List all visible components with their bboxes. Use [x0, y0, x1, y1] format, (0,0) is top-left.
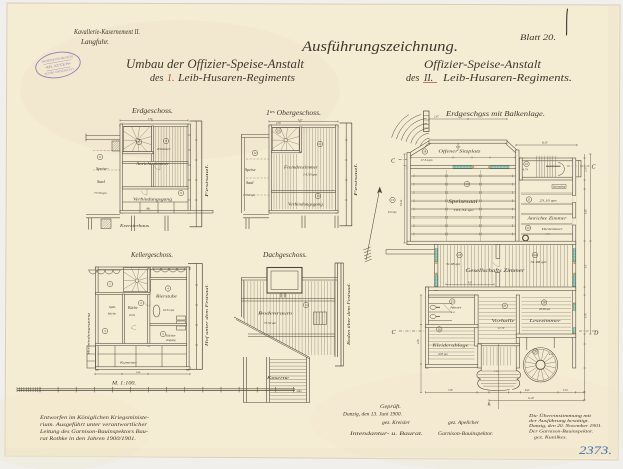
svg-text:Leitung des Garnison-Bauinspek: Leitung des Garnison-Bauinspektors Bau-: [39, 430, 149, 435]
svg-text:13: 13: [317, 194, 321, 198]
svg-text:4.51: 4.51: [468, 281, 472, 284]
svg-text:Speise: Speise: [245, 167, 256, 172]
svg-text:Hof unter dem Festsaal.: Hof unter dem Festsaal.: [205, 284, 209, 348]
svg-text:Speise-: Speise-: [96, 166, 109, 171]
svg-text:Offener Sitzplatz: Offener Sitzplatz: [439, 149, 481, 154]
svg-text:20m: 20m: [297, 389, 303, 393]
svg-text:4.74: 4.74: [523, 168, 529, 172]
svg-text:31.08 qm: 31.08 qm: [531, 260, 548, 264]
svg-text:Anrichte Zimmer: Anrichte Zimmer: [526, 215, 567, 220]
svg-text:Küche: Küche: [127, 306, 138, 310]
svg-text:14: 14: [305, 303, 309, 307]
svg-text:23: 23: [458, 253, 462, 257]
svg-text:11.28: 11.28: [528, 397, 534, 400]
svg-text:22: 22: [527, 226, 531, 230]
svg-text:17.70: 17.70: [498, 326, 505, 330]
svg-text:27: 27: [503, 304, 507, 308]
svg-text:8.41: 8.41: [525, 389, 530, 392]
svg-text:Langfuhr.: Langfuhr.: [80, 38, 109, 46]
svg-text:Garnison-Bauinspektor.: Garnison-Bauinspektor.: [438, 432, 493, 437]
svg-text:9.47: 9.47: [478, 116, 483, 119]
svg-text:19.34: 19.34: [400, 199, 403, 206]
svg-text:Küchen-: Küchen-: [165, 334, 176, 338]
svg-text:Abort: Abort: [448, 305, 461, 309]
svg-text:Zimmer: Zimmer: [157, 147, 172, 151]
svg-text:23.10 qm: 23.10 qm: [540, 198, 558, 202]
svg-text:1tes Obergeschoss.: 1tes Obergeschoss.: [266, 109, 321, 117]
svg-text:26: 26: [438, 327, 442, 331]
svg-text:10: 10: [277, 129, 281, 133]
svg-text:gez. Kunilkes.: gez. Kunilkes.: [534, 435, 567, 440]
svg-text:29: 29: [534, 350, 538, 354]
svg-text:4.05 qm: 4.05 qm: [438, 352, 449, 356]
svg-text:Blatt 20.: Blatt 20.: [520, 33, 556, 42]
svg-text:Ausführungszeichnung.: Ausführungszeichnung.: [301, 39, 458, 55]
svg-text:Exerzierhaus: Exerzierhaus: [119, 224, 150, 228]
svg-text:24: 24: [534, 253, 538, 257]
svg-text:M. 1:100.: M. 1:100.: [111, 381, 136, 387]
svg-text:B.: B.: [488, 402, 492, 407]
svg-text:eingang: eingang: [166, 338, 176, 342]
svg-text:3.10: 3.10: [563, 389, 568, 392]
svg-text:Boden über dem Festsaal.: Boden über dem Festsaal.: [347, 283, 351, 345]
svg-text:75.50 qm: 75.50 qm: [264, 321, 277, 325]
svg-text:31.08 qm: 31.08 qm: [446, 262, 461, 266]
svg-text:Fremdenzimmer: Fremdenzimmer: [283, 166, 319, 170]
svg-text:4.50: 4.50: [276, 122, 281, 125]
svg-text:15: 15: [391, 198, 395, 202]
svg-text:Gesellschafts Zimmer: Gesellschafts Zimmer: [466, 269, 525, 274]
svg-text:Kammer: Kammer: [119, 361, 138, 365]
svg-text:17.34 qm: 17.34 qm: [421, 158, 434, 162]
svg-text:Alk.: Alk.: [145, 208, 151, 211]
svg-text:Dachgeschoss.: Dachgeschoss.: [262, 252, 307, 259]
svg-text:1.71: 1.71: [546, 232, 550, 235]
svg-text:101.34 qm: 101.34 qm: [454, 208, 475, 212]
svg-text:21: 21: [528, 198, 532, 202]
svg-text:4.05: 4.05: [417, 339, 420, 344]
svg-text:12: 12: [254, 151, 258, 155]
svg-text:Verbindungsgang: Verbindungsgang: [87, 312, 91, 355]
svg-text:17.50 qm: 17.50 qm: [243, 193, 256, 197]
svg-text:Saal: Saal: [97, 179, 106, 184]
svg-text:Der Garnison-Bauinspektor.: Der Garnison-Bauinspektor.: [528, 429, 593, 434]
svg-text:28: 28: [543, 301, 547, 305]
svg-text:14.50 qm: 14.50 qm: [303, 174, 317, 177]
svg-text:Offizier-Speise-Anstalt: Offizier-Speise-Anstalt: [424, 57, 542, 71]
svg-text:Festsaal.: Festsaal.: [353, 163, 358, 198]
svg-text:Geprüft.: Geprüft.: [380, 403, 401, 410]
svg-text:Verbindungsgang: Verbindungsgang: [133, 198, 172, 202]
svg-text:Erdgeschoss.: Erdgeschoss.: [131, 108, 173, 115]
svg-text:Vorzimmer: Vorzimmer: [542, 227, 564, 231]
svg-text:Erdgeschoss mit Balkenlage.: Erdgeschoss mit Balkenlage.: [445, 109, 545, 118]
svg-text:Verbindungsgang.: Verbindungsgang.: [288, 203, 324, 207]
svg-text:Entworfen im Königlichen Krieg: Entworfen im Königlichen Kriegsministe-: [39, 416, 150, 421]
svg-text:gez. Kreisler: gez. Kreisler: [382, 420, 411, 426]
svg-text:4.79: 4.79: [585, 313, 588, 318]
svg-text:2373.: 2373.: [579, 445, 612, 457]
svg-text:Bodenraum: Bodenraum: [258, 311, 293, 316]
svg-text:Kellergeschoss.: Kellergeschoss.: [130, 252, 173, 259]
svg-text:rium. Ausgeführt unter verantw: rium. Ausgeführt unter verantwortlicher: [40, 423, 147, 428]
svg-text:Intendantur- u. Baurat.: Intendantur- u. Baurat.: [348, 432, 423, 437]
svg-text:16: 16: [525, 162, 529, 166]
svg-text:Spül-: Spül-: [109, 305, 116, 309]
svg-text:rat Rothke in den Jahren 1900/: rat Rothke in den Jahren 1900/1901.: [40, 437, 136, 442]
svg-text:Umbau der Offizier-Speise-Anst: Umbau der Offizier-Speise-Anstalt: [126, 57, 305, 71]
svg-text:8.10: 8.10: [542, 141, 548, 145]
svg-text:16.94: 16.94: [129, 314, 136, 317]
svg-text:16.51 qm: 16.51 qm: [163, 308, 175, 312]
svg-text:7.05: 7.05: [448, 389, 453, 392]
svg-text:gez. Apellcher: gez. Apellcher: [448, 420, 480, 426]
svg-text:Saal: Saal: [246, 180, 254, 185]
svg-text:küche: küche: [108, 312, 116, 316]
svg-text:Vorhalle: Vorhalle: [492, 318, 515, 323]
svg-text:Speisesaal: Speisesaal: [449, 199, 479, 205]
svg-text:Kaserne: Kaserne: [265, 375, 289, 380]
svg-text:des1.Leib-Husaren-Regiments: des1.Leib-Husaren-Regiments: [150, 73, 295, 84]
svg-text:25: 25: [451, 300, 455, 304]
svg-text:8.10 qm: 8.10 qm: [388, 211, 396, 214]
svg-text:Festsaal.: Festsaal.: [204, 164, 209, 199]
svg-text:Danzig, den 13. Juni 1900.: Danzig, den 13. Juni 1900.: [342, 412, 402, 418]
svg-text:19: 19: [466, 182, 470, 186]
svg-text:Bierstube: Bierstube: [156, 295, 177, 299]
svg-text:11: 11: [319, 142, 322, 146]
svg-text:Kavallerie-Kasernement II.: Kavallerie-Kasernement II.: [73, 28, 140, 36]
svg-text:77.50 qm: 77.50 qm: [94, 191, 107, 195]
svg-text:18: 18: [423, 150, 427, 154]
svg-text:Kleiderablage: Kleiderablage: [431, 342, 468, 347]
svg-text:2.47: 2.47: [434, 116, 439, 119]
svg-text:20.00 qm: 20.00 qm: [539, 307, 551, 311]
svg-text:Speiseaufzug: Speiseaufzug: [553, 186, 566, 189]
svg-text:2.10: 2.10: [585, 167, 588, 172]
svg-text:Lesezimmer: Lesezimmer: [528, 318, 561, 323]
svg-text:D: D: [593, 331, 599, 337]
svg-text:Anrichtezimmer: Anrichtezimmer: [135, 162, 170, 166]
svg-text:6.80: 6.80: [585, 209, 588, 214]
